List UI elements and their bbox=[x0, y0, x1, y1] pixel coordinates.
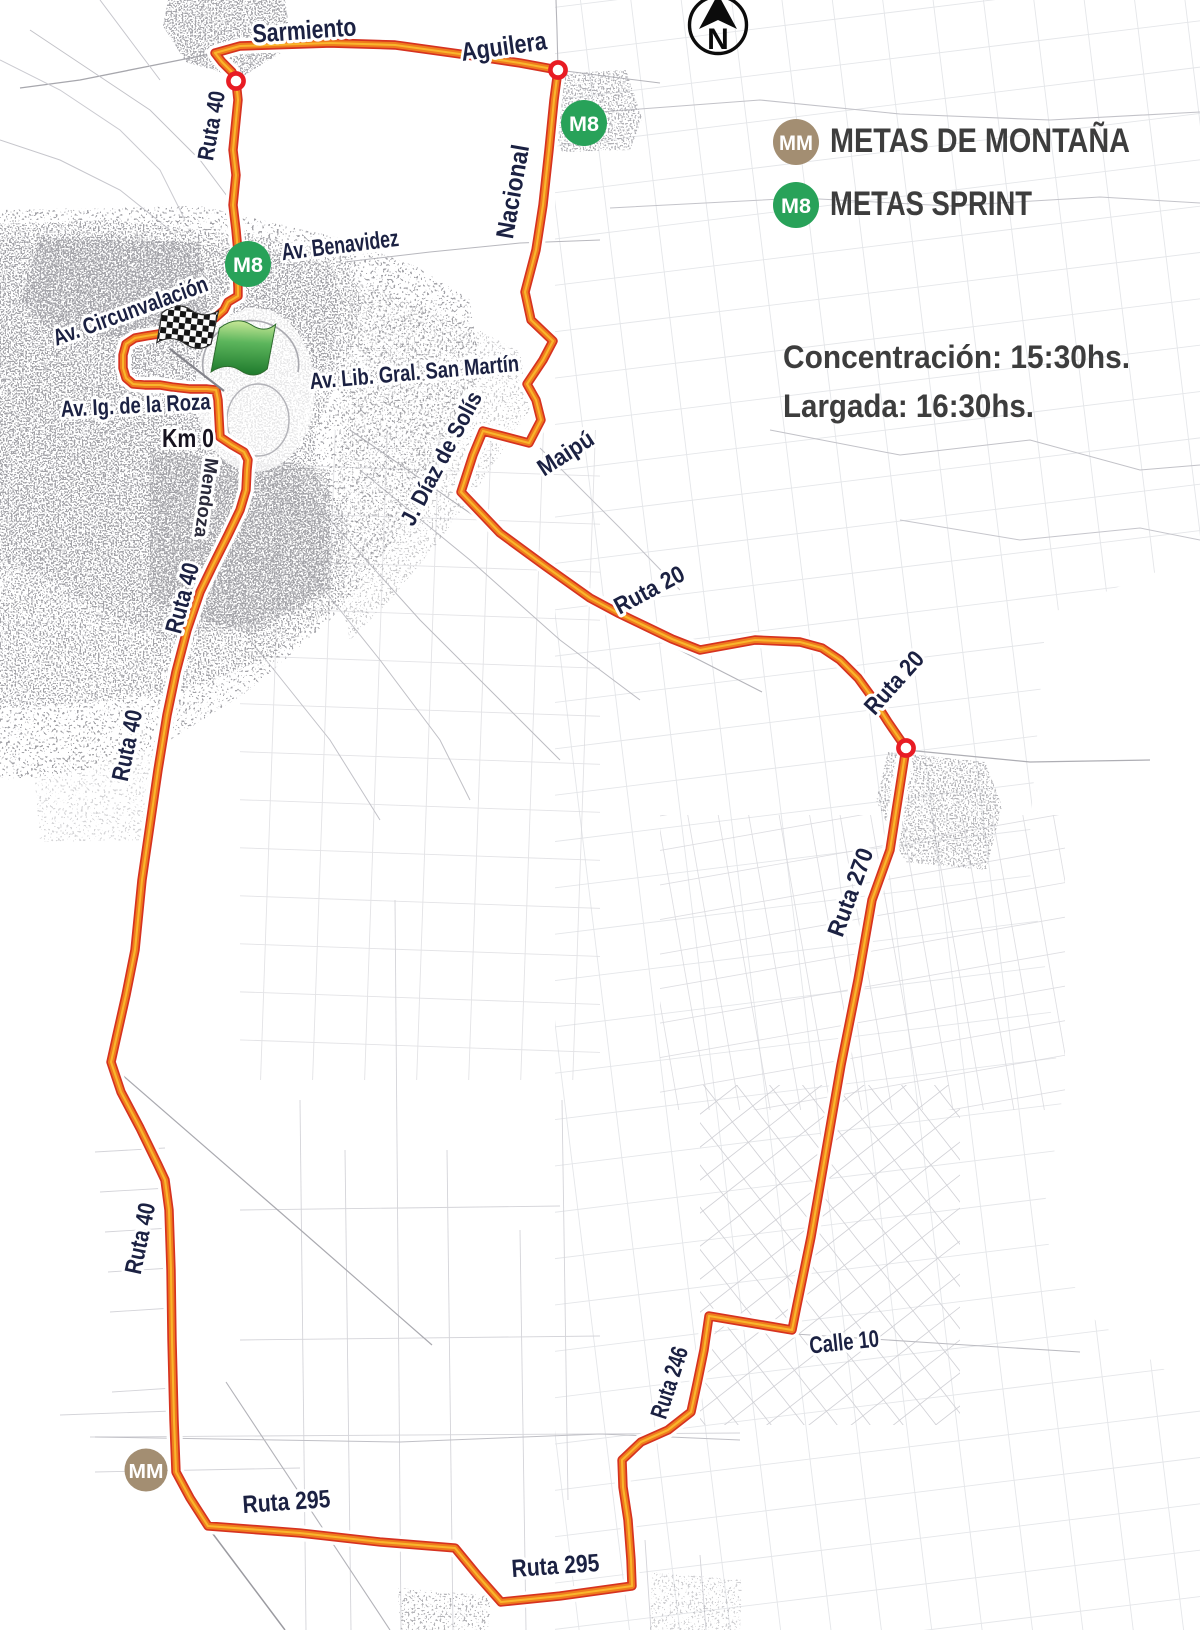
svg-text:METAS SPRINT: METAS SPRINT bbox=[830, 185, 1032, 223]
svg-text:MM: MM bbox=[779, 132, 813, 155]
svg-text:Largada: 16:30hs.: Largada: 16:30hs. bbox=[783, 388, 1034, 424]
svg-text:M8: M8 bbox=[233, 254, 263, 277]
svg-text:MM: MM bbox=[129, 1461, 164, 1483]
svg-text:METAS DE MONTAÑA: METAS DE MONTAÑA bbox=[830, 122, 1130, 160]
svg-text:Concentración: 15:30hs.: Concentración: 15:30hs. bbox=[783, 339, 1130, 375]
svg-text:Km 0: Km 0 bbox=[162, 423, 214, 453]
svg-text:N: N bbox=[707, 23, 729, 56]
svg-text:M8: M8 bbox=[781, 195, 811, 218]
svg-text:M8: M8 bbox=[569, 113, 599, 136]
